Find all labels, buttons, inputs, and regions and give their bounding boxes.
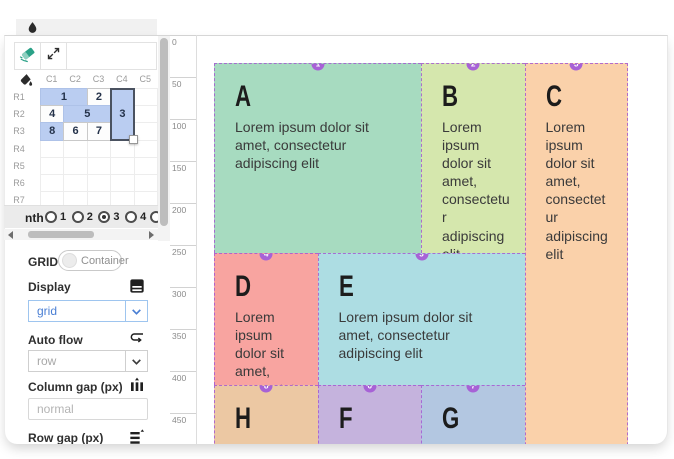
matrix-row-header: R6 — [8, 178, 30, 188]
display-label: Display — [28, 280, 71, 294]
nth-radio-label: 1 — [60, 211, 66, 223]
matrix-row-header: R1 — [8, 92, 30, 102]
grid-section-label: GRID — [28, 255, 58, 269]
matrix-cell[interactable] — [134, 88, 158, 106]
matrix-cell[interactable] — [134, 157, 158, 175]
column-gap-icon — [129, 377, 145, 393]
row-gap-label: Row gap (px) — [28, 431, 103, 444]
ruler-tick — [170, 35, 196, 36]
grid-builder-app: C1C2C3C4C5R1R2R3R4R5R6R71234586705010015… — [0, 0, 674, 459]
auto-flow-label: Auto flow — [28, 333, 83, 347]
ruler-tick-label: 50 — [172, 79, 181, 89]
matrix-row-header: R2 — [8, 109, 30, 119]
area-badge[interactable]: 7 — [467, 385, 480, 393]
ruler-tick — [170, 413, 196, 414]
ink-drop-icon — [26, 21, 39, 34]
matrix-cell[interactable] — [63, 157, 87, 175]
area-badge[interactable]: 3 — [570, 63, 583, 71]
area-letter: H — [235, 403, 251, 435]
matrix-cell[interactable] — [40, 174, 64, 192]
matrix-row-header: R4 — [8, 144, 30, 154]
ruler-tick-label: 200 — [172, 205, 186, 215]
ruler-tick — [170, 287, 196, 288]
ruler-tick-label: 400 — [172, 373, 186, 383]
grid-canvas: 1ALorem ipsum dolor sit amet, consectetu… — [214, 63, 628, 444]
area-letter: E — [339, 271, 354, 303]
ruler-tick-label: 250 — [172, 247, 186, 257]
matrix-cell[interactable] — [134, 174, 158, 192]
ruler-tick — [170, 77, 196, 78]
expand-arrows-icon — [46, 46, 61, 66]
matrix-cell[interactable] — [87, 140, 111, 158]
ruler-divider — [196, 35, 197, 444]
nth-radio-partial[interactable] — [150, 211, 158, 223]
vertical-scroll-thumb[interactable] — [160, 38, 168, 226]
matrix-cell[interactable] — [134, 105, 158, 123]
matrix-area-1[interactable]: 1 — [40, 88, 88, 106]
matrix-cell[interactable] — [40, 140, 64, 158]
area-lorem-text: Lorem ipsum dolor sit amet, consectetur … — [235, 440, 304, 445]
nth-radio-1[interactable] — [45, 211, 57, 223]
area-lorem-text: Lorem ipsum dolor sit amet, consectetur … — [339, 440, 408, 445]
area-badge[interactable]: 2 — [467, 63, 480, 71]
grid-area-D[interactable]: 4DLorem ipsum dolor sit amet, consectetu… — [214, 253, 318, 385]
area-lorem-text: Lorem ipsum dolor sit amet, consectetur … — [235, 118, 385, 173]
display-icon — [129, 278, 145, 294]
horizontal-scroll-thumb[interactable] — [28, 231, 94, 238]
area-letter: G — [442, 403, 459, 435]
matrix-cell[interactable] — [40, 157, 64, 175]
matrix-col-header: C5 — [134, 74, 157, 84]
matrix-col-header: C2 — [63, 74, 86, 84]
nth-radio-2[interactable] — [72, 211, 84, 223]
ruler-tick-label: 350 — [172, 331, 186, 341]
area-lorem-text: Lorem ipsum dolor sit amet, consectetur … — [339, 308, 489, 363]
container-toggle[interactable]: Container — [58, 250, 122, 271]
grid-area-B[interactable]: 2BLorem ipsum dolor sit amet, consectetu… — [421, 63, 525, 253]
matrix-area-6[interactable]: 6 — [63, 122, 87, 140]
eraser-icon — [19, 45, 37, 68]
chevron-down-icon — [125, 351, 147, 371]
area-badge[interactable]: 4 — [260, 253, 273, 261]
toggle-label: Container — [81, 255, 129, 267]
column-gap-label: Column gap (px) — [28, 380, 123, 394]
auto-flow-icon — [129, 330, 145, 346]
matrix-cell[interactable] — [63, 140, 87, 158]
ruler-tick-label: 150 — [172, 163, 186, 173]
matrix-row-header: R7 — [8, 195, 30, 205]
chevron-down-icon — [125, 301, 147, 321]
column-gap-input[interactable] — [28, 398, 148, 420]
nth-radio-label: 2 — [87, 211, 93, 223]
area-letter: D — [235, 271, 251, 303]
matrix-area-4[interactable]: 4 — [40, 105, 64, 123]
canvas-toolbar — [14, 42, 157, 70]
area-letter: A — [235, 81, 251, 113]
ruler-tick — [170, 119, 196, 120]
grid-area-G[interactable]: 7GLorem ipsum dolor sit amet, consectetu… — [421, 385, 525, 444]
matrix-row-header: R3 — [8, 126, 30, 136]
ruler-tick — [170, 329, 196, 330]
ruler-tick — [170, 203, 196, 204]
grid-area-E[interactable]: 5ELorem ipsum dolor sit amet, consectetu… — [318, 253, 525, 385]
matrix-area-2[interactable]: 2 — [87, 88, 111, 106]
paint-fill-icon[interactable] — [19, 73, 33, 87]
matrix-area-7[interactable]: 7 — [87, 122, 111, 140]
grid-area-C[interactable]: 3CLorem ipsum dolor sit amet, consectetu… — [525, 63, 629, 444]
matrix-col-header: C4 — [110, 74, 133, 84]
ruler-tick — [170, 371, 196, 372]
nth-selector-bar: nth 1234 — [4, 205, 158, 228]
ruler-tick-label: 100 — [172, 121, 186, 131]
ruler-tick-label: 0 — [172, 37, 177, 47]
area-lorem-text: Lorem ipsum dolor sit amet, consectetur … — [546, 118, 614, 264]
area-lorem-text: Lorem ipsum dolor sit amet, consectetur … — [235, 308, 304, 386]
eraser-button[interactable] — [15, 43, 41, 69]
grid-area-A[interactable]: 1ALorem ipsum dolor sit amet, consectetu… — [214, 63, 421, 253]
toggle-knob[interactable] — [62, 253, 77, 268]
matrix-area-5[interactable]: 5 — [63, 105, 111, 123]
area-letter: F — [339, 403, 353, 435]
vertical-scrollbar[interactable] — [158, 36, 170, 241]
matrix-col-header: C3 — [87, 74, 110, 84]
area-badge[interactable]: 5 — [415, 253, 428, 261]
grid-area-F[interactable]: 6FLorem ipsum dolor sit amet, consectetu… — [318, 385, 422, 444]
display-select[interactable]: grid — [28, 300, 148, 322]
auto-flow-select-value: row — [29, 354, 125, 368]
area-lorem-text: Lorem ipsum dolor sit amet, consectetur … — [442, 440, 511, 445]
matrix-cell[interactable] — [110, 157, 134, 175]
matrix-cell[interactable] — [87, 174, 111, 192]
ruler-tick-label: 450 — [172, 415, 186, 425]
row-gap-icon — [129, 428, 145, 444]
expand-button[interactable] — [41, 43, 67, 69]
matrix-cell[interactable] — [87, 157, 111, 175]
auto-flow-select[interactable]: row — [28, 350, 148, 372]
selection-resize-handle[interactable] — [129, 135, 138, 144]
matrix-area-3[interactable]: 3 — [110, 88, 134, 141]
nth-radio-label: 4 — [140, 211, 146, 223]
scroll-left-icon[interactable] — [8, 231, 13, 239]
matrix-col-header: C1 — [40, 74, 63, 84]
horizontal-scrollbar[interactable] — [4, 229, 158, 240]
nth-radio-3[interactable] — [98, 211, 110, 223]
area-badge[interactable]: 1 — [312, 63, 325, 71]
area-lorem-text: Lorem ipsum dolor sit amet, consectetur … — [442, 118, 511, 254]
ruler-tick — [170, 245, 196, 246]
nth-radio-4[interactable] — [125, 211, 137, 223]
area-letter: C — [546, 81, 562, 113]
matrix-row-header: R5 — [8, 161, 30, 171]
nth-radio-label: 3 — [113, 211, 119, 223]
area-letter: B — [442, 81, 458, 113]
area-badge[interactable]: 8 — [260, 385, 273, 393]
radio-dot — [102, 215, 106, 219]
matrix-area-8[interactable]: 8 — [40, 122, 64, 140]
ruler-tick — [170, 161, 196, 162]
nth-label: nth — [25, 211, 44, 225]
scroll-right-icon[interactable] — [149, 231, 154, 239]
grid-area-H[interactable]: 8HLorem ipsum dolor sit amet, consectetu… — [214, 385, 318, 444]
ruler-tick-label: 300 — [172, 289, 186, 299]
matrix-cell[interactable] — [63, 174, 87, 192]
area-badge[interactable]: 6 — [363, 385, 376, 393]
matrix-cell[interactable] — [110, 174, 134, 192]
display-select-value: grid — [29, 304, 125, 318]
